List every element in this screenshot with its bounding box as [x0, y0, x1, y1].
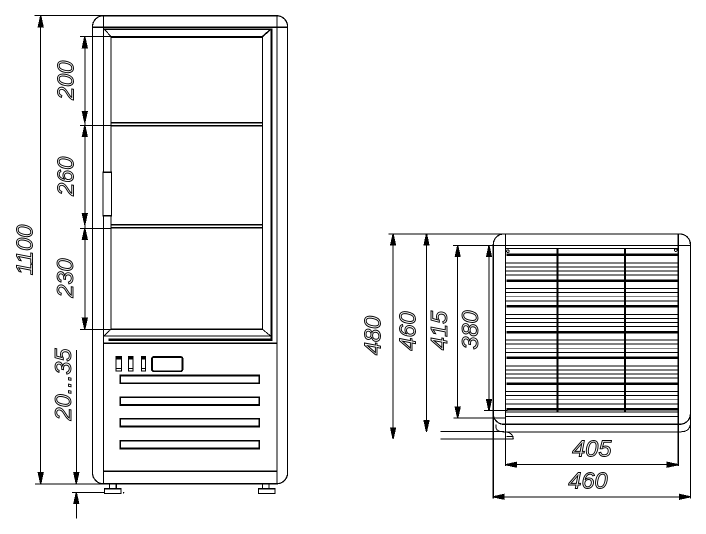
svg-text:460: 460 [394, 311, 420, 350]
svg-text:20...35: 20...35 [50, 348, 76, 422]
svg-text:415: 415 [426, 310, 452, 350]
svg-text:230: 230 [52, 258, 78, 298]
svg-text:480: 480 [360, 316, 386, 355]
svg-text:260: 260 [53, 157, 79, 197]
svg-text:1100: 1100 [12, 225, 38, 276]
svg-text:405: 405 [572, 436, 612, 462]
svg-text:380: 380 [457, 310, 483, 349]
svg-text:460: 460 [568, 468, 607, 494]
svg-text:200: 200 [52, 61, 78, 101]
